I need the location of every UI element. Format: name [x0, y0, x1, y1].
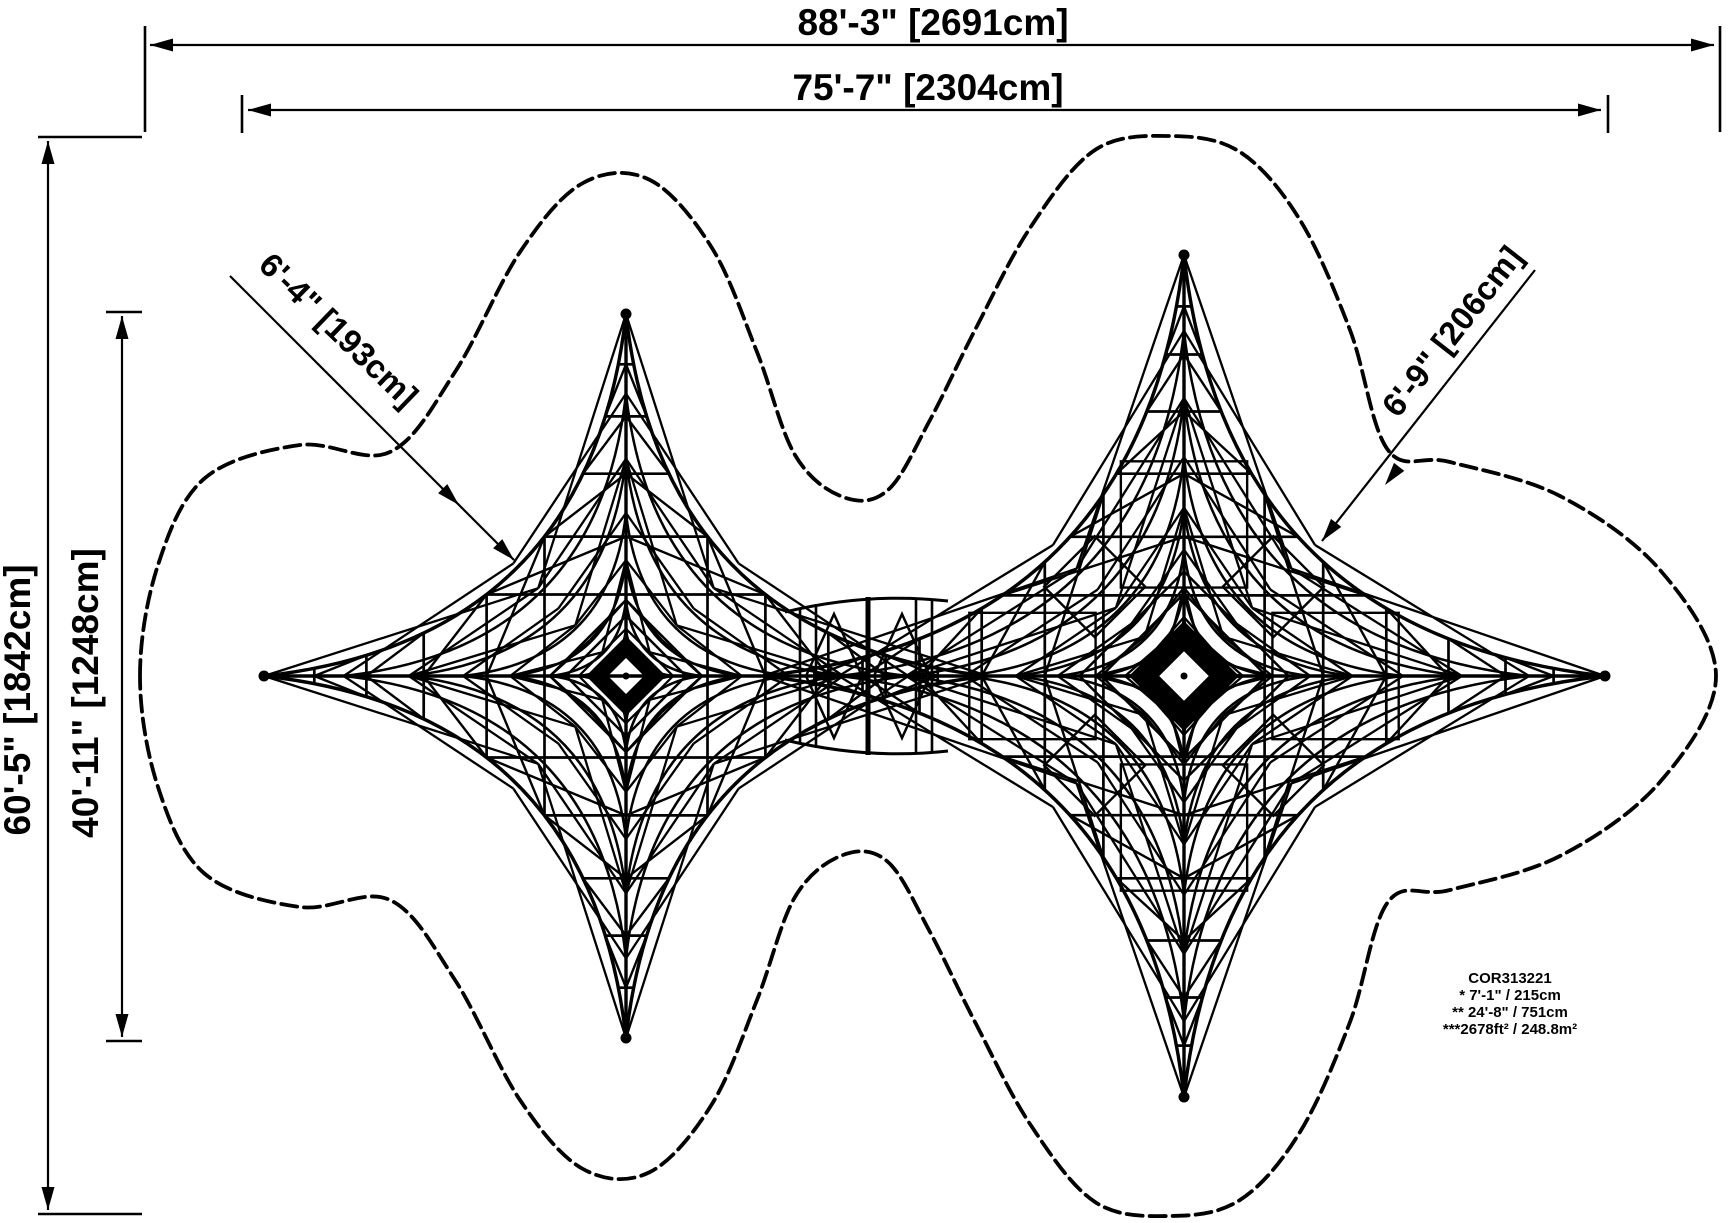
dimension-arrowhead	[1691, 39, 1714, 52]
dimension-arrowhead	[150, 39, 173, 52]
net-web-line	[409, 676, 576, 727]
net-web-line	[264, 676, 538, 764]
net-web-line	[1315, 545, 1529, 676]
net-web-line	[1315, 676, 1529, 807]
dimension-arrowhead	[116, 1014, 129, 1037]
net-web-line	[264, 588, 538, 676]
left-climbing-net	[259, 309, 1611, 1044]
net-web-line	[906, 676, 1116, 744]
net-web-line	[626, 727, 677, 894]
net-web-line	[575, 459, 626, 626]
net-web-line	[1184, 398, 1252, 608]
dim-clearance-right-label: 6'-9" [206cm]	[1374, 239, 1529, 423]
product-note-line-3: ***2678ft² / 248.8m²	[1443, 1021, 1577, 1038]
net-web-line	[626, 459, 677, 626]
plan-drawing: 88'-3" [2691cm] 75'-7" [2304cm] 60'-5" […	[0, 0, 1730, 1223]
net-web-line	[1184, 807, 1315, 1021]
product-note: COR313221 * 7'-1" / 215cm ** 24'-8" / 75…	[1443, 970, 1577, 1038]
net-web-line	[626, 764, 714, 1038]
dim-overall-height-label: 60'-5" [1842cm]	[0, 564, 38, 835]
net-web-line	[1252, 608, 1462, 676]
net-web-line	[409, 625, 576, 676]
dim-leader-line	[230, 276, 514, 560]
dimension-arrowhead	[42, 1187, 55, 1210]
dimension-arrowhead	[248, 104, 271, 117]
product-model: COR313221	[1468, 970, 1551, 987]
net-web-line	[906, 608, 1116, 676]
net-web-line	[839, 676, 1053, 807]
dim-overall-width-label: 88'-3" [2691cm]	[797, 2, 1068, 43]
net-web-line	[1184, 331, 1315, 545]
dim-net-span-width-label: 75'-7" [2304cm]	[792, 67, 1063, 108]
dimension-arrowhead	[1385, 463, 1404, 485]
dimension-arrowhead	[1322, 519, 1341, 541]
dimension-arrowhead	[116, 316, 129, 339]
net-web-line	[1053, 331, 1184, 545]
dimension-arrowhead	[1578, 104, 1601, 117]
product-note-line-2: ** 24'-8" / 751cm	[1452, 1004, 1568, 1021]
net-anchor-dot	[259, 671, 270, 682]
net-web-line	[538, 314, 626, 588]
net-web-line	[1053, 807, 1184, 1021]
drawing-canvas: 88'-3" [2691cm] 75'-7" [2304cm] 60'-5" […	[0, 0, 1730, 1223]
net-web-line	[1116, 398, 1184, 608]
net-web-line	[1116, 744, 1184, 954]
net-web-line	[575, 727, 626, 894]
net-web-line	[626, 314, 714, 588]
net-web-line	[1252, 676, 1462, 744]
product-note-line-1: * 7'-1" / 215cm	[1459, 987, 1561, 1004]
dim-leader-line	[1322, 270, 1535, 541]
net-web-line	[839, 545, 1053, 676]
dim-net-span-height-label: 40'-11" [1248cm]	[65, 548, 106, 838]
net-web-line	[1184, 744, 1252, 954]
dimension-arrowhead	[42, 141, 55, 164]
net-centre-dot	[1181, 673, 1188, 680]
dim-clearance-left-label: 6'-4" [193cm]	[252, 245, 425, 414]
net-web-line	[538, 764, 626, 1038]
